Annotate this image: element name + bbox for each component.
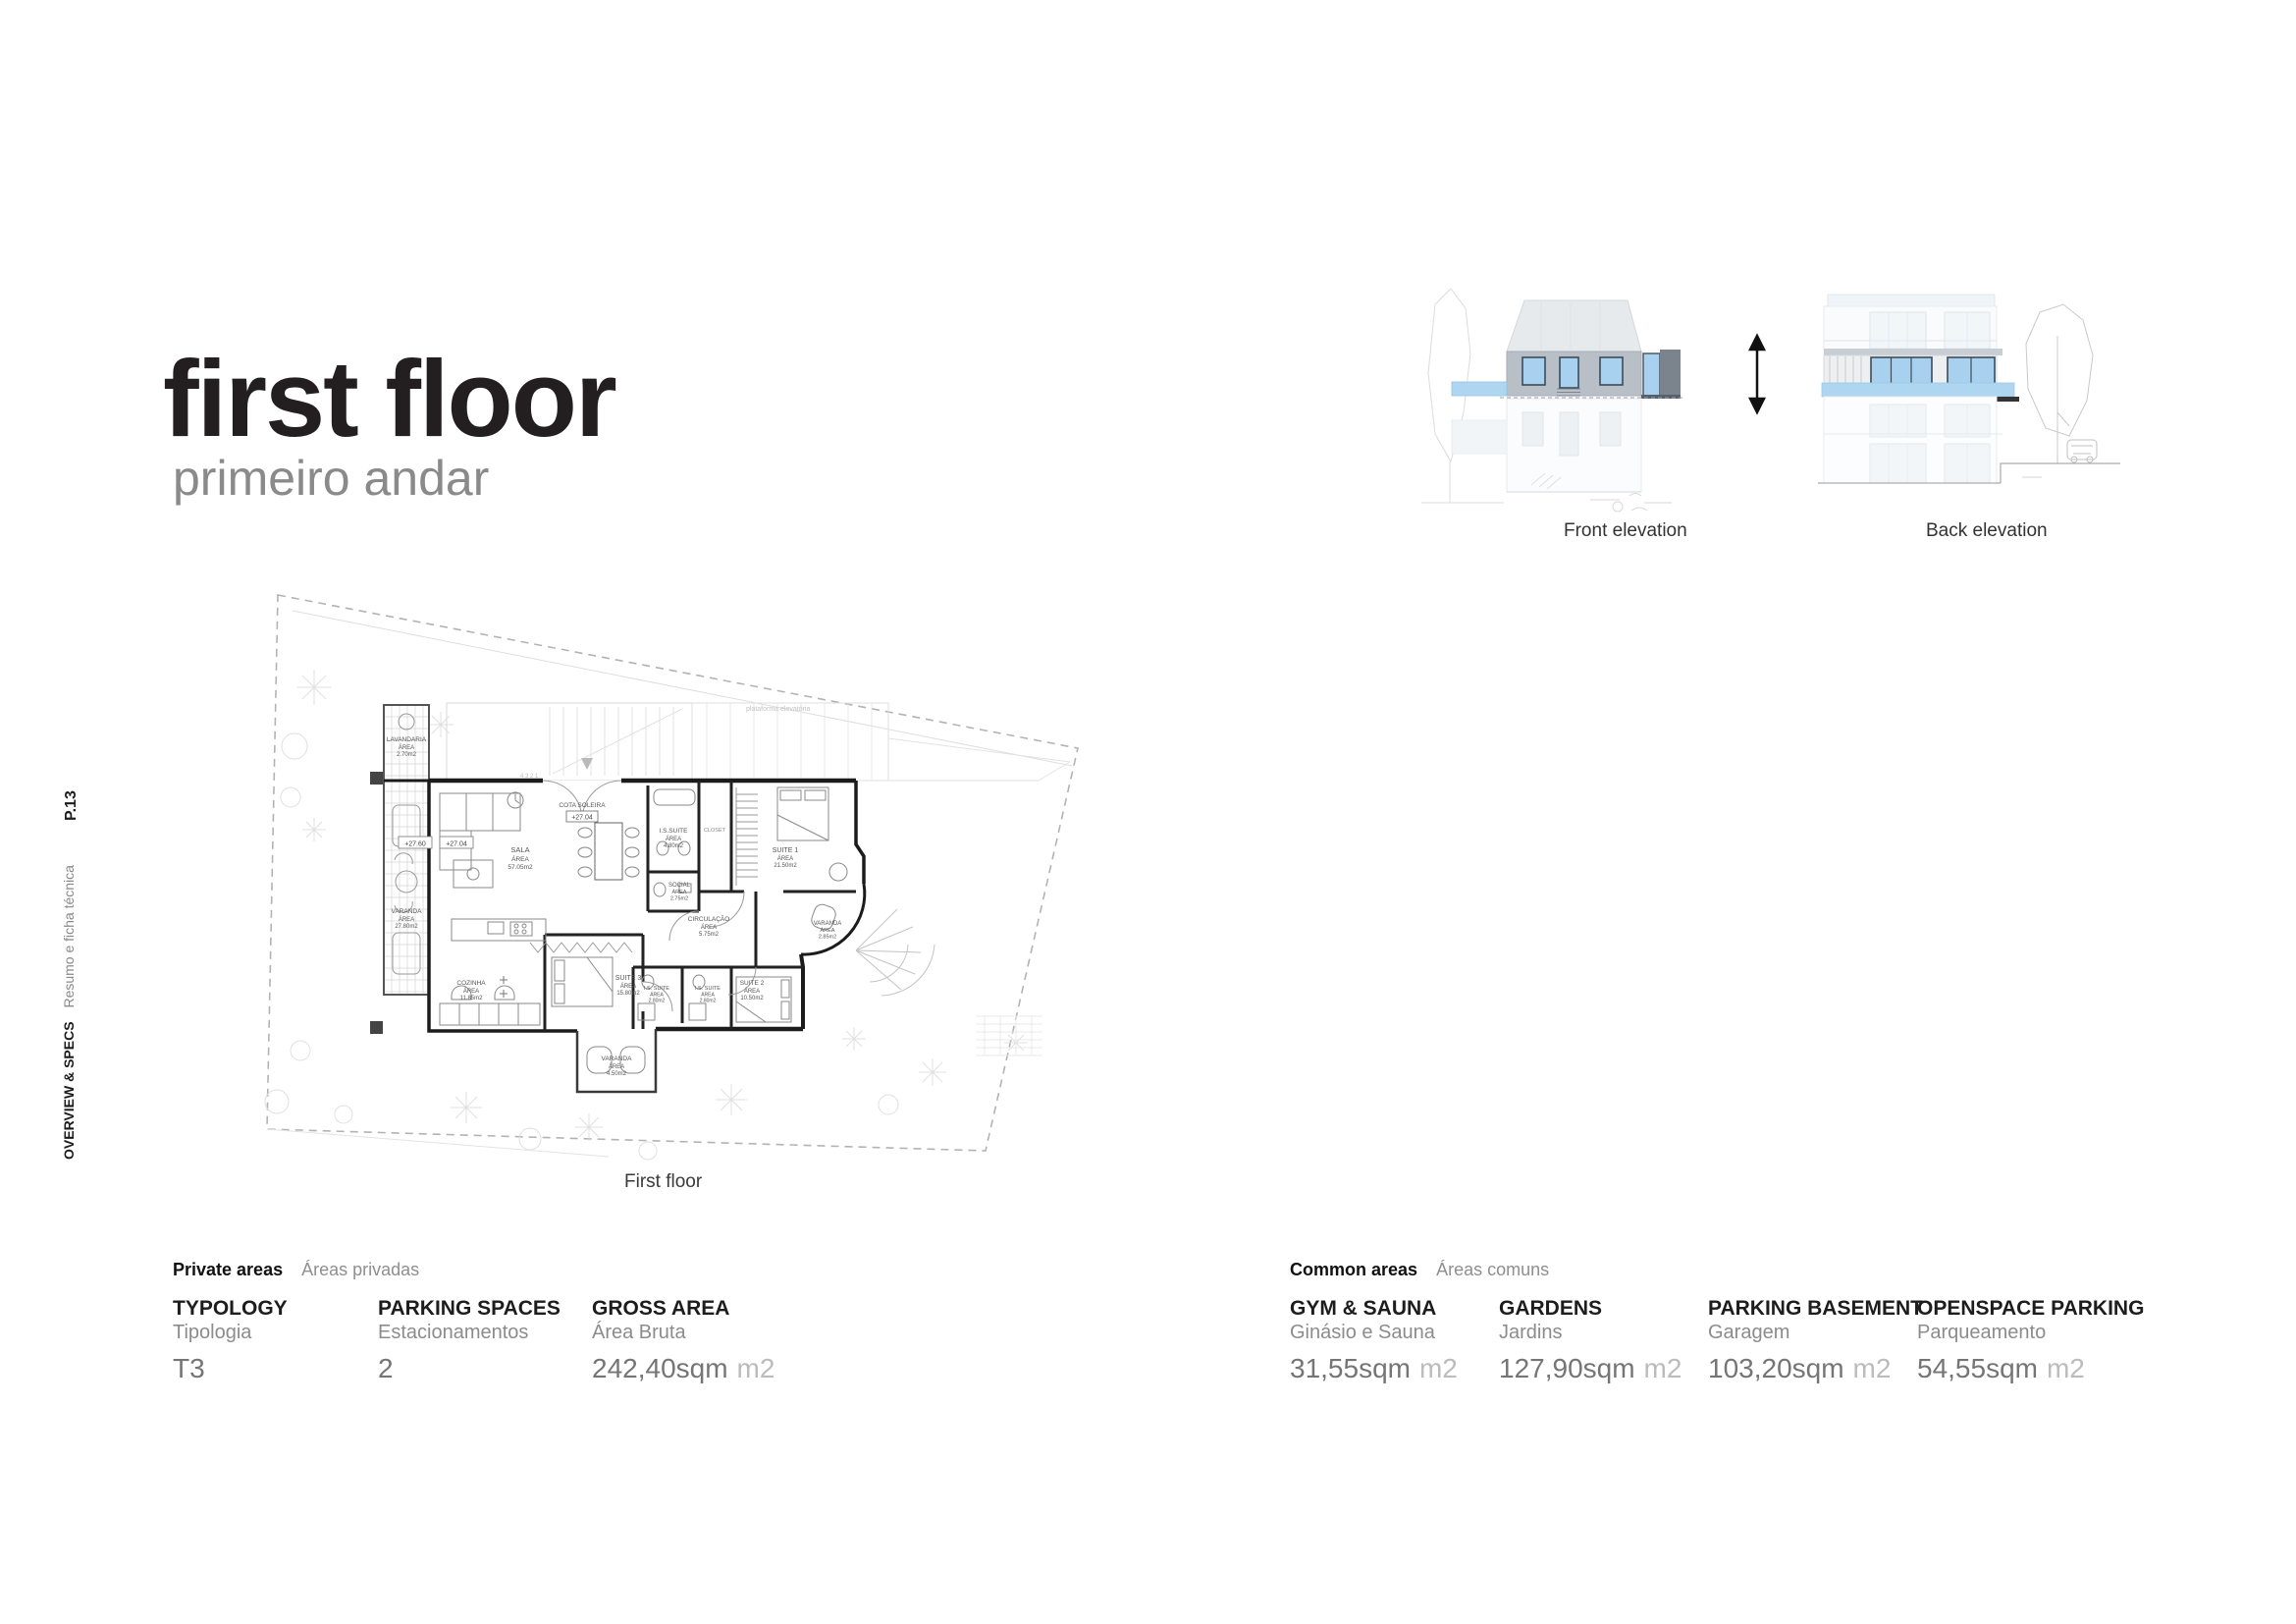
spec-openspace-parking: OPENSPACE PARKING Parqueamento 54,55sqmm… [1917,1297,2144,1384]
front-dark-block [1660,350,1681,396]
spec-value: T3 [173,1353,288,1384]
upper-structure: plataforma elevatória 4 3 2 1 [447,703,1070,781]
elevation-arrow-icon [1750,336,1764,412]
svg-text:5.75m2: 5.75m2 [699,932,720,938]
back-roof-band [1828,295,1995,306]
svg-text:SUITE 1: SUITE 1 [773,847,799,854]
spec-label: GYM & SAUNA [1290,1297,1458,1321]
page-title: first floor [163,346,615,454]
private-areas-heading-en: Private areas [173,1260,283,1279]
svg-text:SUITE 2: SUITE 2 [740,980,765,987]
svg-text:VARANDA: VARANDA [392,908,423,915]
floor-plan-drawing: plataforma elevatória 4 3 2 1 [250,574,1095,1208]
brochure-page: first floor primeiro andar P.13 OVERVIEW… [0,0,2296,1624]
spec-gym-sauna: GYM & SAUNA Ginásio e Sauna 31,55sqmm2 [1290,1297,1458,1384]
threshold-value: +27.04 [571,815,593,822]
level-tag: +27.60 [404,841,426,848]
front-ground [1507,492,1672,512]
spec-value: 242,40sqmm2 [592,1353,774,1384]
svg-text:VARANDA: VARANDA [602,1056,633,1062]
spec-gross-area: GROSS AREA Área Bruta 242,40sqmm2 [592,1297,774,1384]
svg-text:ÁREA: ÁREA [744,988,760,995]
svg-text:10.50m2: 10.50m2 [740,996,764,1001]
svg-text:I.S. SUITE: I.S. SUITE [644,986,669,992]
page-number: P.13 [63,790,80,821]
closet-label: CLOSET [704,828,726,834]
front-elevation [1421,289,1684,512]
spec-label: GROSS AREA [592,1297,774,1321]
front-attic [1507,300,1641,352]
common-areas-section: Common areas Áreas comuns GYM & SAUNA Gi… [1290,1260,2173,1415]
svg-text:ÁREA: ÁREA [620,983,636,990]
svg-text:15.80m2: 15.80m2 [616,991,640,997]
spec-parking-spaces: PARKING SPACES Estacionamentos 2 [378,1297,561,1384]
svg-text:ÁREA: ÁREA [399,916,414,923]
platform-note: plataforma elevatória [746,706,810,713]
private-areas-heading-pt: Áreas privadas [301,1260,419,1279]
common-areas-heading: Common areas Áreas comuns [1290,1260,2173,1280]
front-elevation-label: Front elevation [1564,520,1687,542]
spec-typology: TYPOLOGY Tipologia T3 [173,1297,288,1384]
svg-text:2.70m2: 2.70m2 [397,752,417,758]
svg-text:CIRCULAÇÃO: CIRCULAÇÃO [688,914,730,923]
svg-text:27.80m2: 27.80m2 [395,924,418,930]
svg-text:ÁREA: ÁREA [650,992,664,999]
svg-text:I.S. SUITE: I.S. SUITE [695,986,721,992]
level-tag: +27.04 [446,841,467,848]
back-balcony-band [1822,383,2014,397]
spec-sublabel: Estacionamentos [378,1321,561,1344]
spec-sublabel: Tipologia [173,1321,288,1344]
svg-text:4.50m2: 4.50m2 [607,1071,627,1077]
svg-text:21.50m2: 21.50m2 [774,863,797,869]
spec-label: PARKING BASEMENT [1708,1297,1923,1321]
spec-parking-basement: PARKING BASEMENT Garagem 103,20sqmm2 [1708,1297,1923,1384]
back-balcony-end [1997,397,2019,402]
elevations-drawing [1394,255,2140,550]
svg-text:ÁREA: ÁREA [399,744,414,751]
private-areas-section: Private areas Áreas privadas TYPOLOGY Ti… [173,1260,860,1415]
spec-sublabel: Parqueamento [1917,1321,2144,1344]
back-elevation-label: Back elevation [1926,520,2048,542]
svg-text:4.80m2: 4.80m2 [664,843,684,849]
back-lower-floors [1824,397,2002,483]
front-lower-floor [1452,399,1641,492]
svg-text:I.S.SUITE: I.S.SUITE [660,828,689,835]
spec-sublabel: Jardins [1499,1321,1682,1344]
spec-label: OPENSPACE PARKING [1917,1297,2144,1321]
section-label-pt: Resumo e ficha técnica [61,865,77,1008]
svg-text:SUITE 3: SUITE 3 [615,975,642,982]
svg-text:ÁREA: ÁREA [701,924,717,931]
spec-sublabel: Área Bruta [592,1321,774,1344]
back-elevation [1818,295,2120,483]
svg-text:ÁREA: ÁREA [463,988,479,995]
spec-value: 31,55sqmm2 [1290,1353,1458,1384]
svg-text:2.80m2: 2.80m2 [649,999,666,1004]
spec-label: TYPOLOGY [173,1297,288,1321]
front-windows [1522,357,1623,388]
floor-plan-caption: First floor [624,1171,702,1193]
svg-text:2.85m2: 2.85m2 [819,935,836,941]
spec-label: PARKING SPACES [378,1297,561,1321]
spec-sublabel: Garagem [1708,1321,1923,1344]
spec-value: 54,55sqmm2 [1917,1353,2144,1384]
svg-text:ÁREA: ÁREA [672,889,687,895]
spec-label: GARDENS [1499,1297,1682,1321]
front-side-window [1643,353,1660,396]
threshold-label: COTA SOLEIRA [559,802,606,809]
svg-text:ÁREA: ÁREA [609,1063,624,1070]
spec-value: 103,20sqmm2 [1708,1353,1923,1384]
private-areas-heading: Private areas Áreas privadas [173,1260,860,1280]
common-areas-heading-pt: Áreas comuns [1436,1260,1549,1279]
common-areas-heading-en: Common areas [1290,1260,1417,1279]
back-top-floor [1824,306,1997,351]
section-label-en: OVERVIEW & SPECS [61,1021,77,1160]
svg-text:SOCIAL: SOCIAL [668,883,691,889]
svg-text:ÁREA: ÁREA [511,854,529,863]
back-slab [1824,349,2002,355]
svg-text:COZINHA: COZINHA [456,980,486,987]
section-label: OVERVIEW & SPECS Resumo e ficha técnica [61,865,77,1160]
page-subtitle: primeiro andar [173,454,489,503]
svg-text:ÁREA: ÁREA [777,855,793,862]
back-car [2067,440,2097,462]
svg-text:ÁREA: ÁREA [821,927,835,934]
svg-text:2.80m2: 2.80m2 [700,999,717,1004]
svg-text:ÁREA: ÁREA [666,836,681,842]
spec-value: 2 [378,1353,561,1384]
svg-text:SALA: SALA [510,845,529,854]
svg-text:VARANDA: VARANDA [814,921,842,927]
svg-text:2.75m2: 2.75m2 [670,896,688,902]
svg-text:ÁREA: ÁREA [701,992,715,999]
spec-gardens: GARDENS Jardins 127,90sqmm2 [1499,1297,1682,1384]
front-balcony-band [1452,382,1507,396]
svg-text:11.85m2: 11.85m2 [460,996,484,1001]
svg-text:LAVANDARIA: LAVANDARIA [387,736,427,743]
spec-sublabel: Ginásio e Sauna [1290,1321,1458,1344]
svg-text:57.05m2: 57.05m2 [507,864,533,871]
spec-value: 127,90sqmm2 [1499,1353,1682,1384]
building-footprint [384,705,865,1092]
